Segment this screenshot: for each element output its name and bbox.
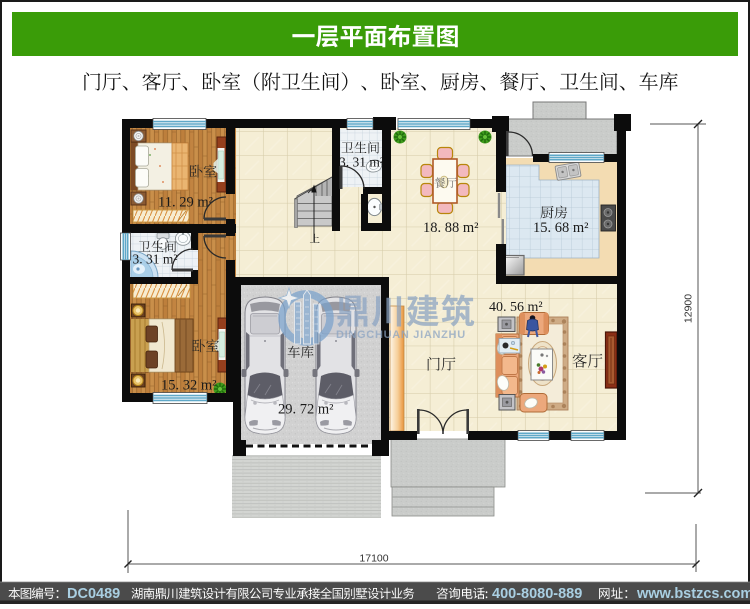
svg-text:18. 88 m²: 18. 88 m² — [423, 220, 479, 236]
svg-text:40. 56 m²: 40. 56 m² — [489, 300, 543, 315]
svg-text:17100: 17100 — [359, 553, 388, 565]
svg-text:15. 32 m²: 15. 32 m² — [161, 378, 217, 394]
svg-text:15. 68 m²: 15. 68 m² — [533, 220, 589, 236]
svg-text:3. 31 m²: 3. 31 m² — [133, 252, 178, 267]
svg-text:www.bstzcs.com: www.bstzcs.com — [636, 586, 750, 602]
svg-text:29. 72 m²: 29. 72 m² — [278, 402, 334, 418]
svg-text:400-8080-889: 400-8080-889 — [492, 586, 582, 602]
svg-text:DINGCHUAN JIANZHU: DINGCHUAN JIANZHU — [336, 329, 466, 341]
svg-text:11. 29 m²: 11. 29 m² — [158, 195, 214, 211]
svg-text:DC0489: DC0489 — [67, 586, 120, 602]
svg-text:3. 31 m²: 3. 31 m² — [339, 155, 384, 170]
svg-text:12900: 12900 — [683, 294, 695, 323]
